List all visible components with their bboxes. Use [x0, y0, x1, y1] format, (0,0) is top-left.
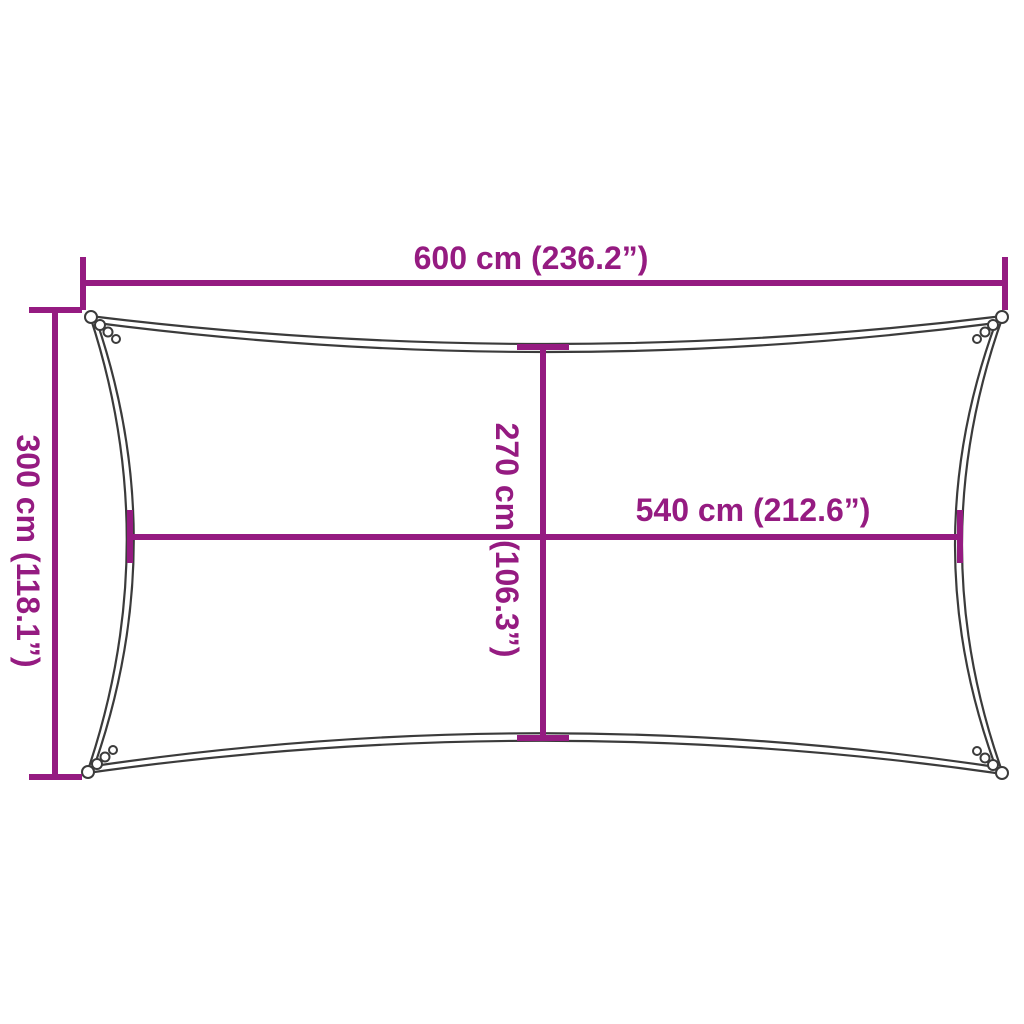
grommet-ring	[981, 328, 990, 337]
sail-edge-right-outer	[962, 316, 1003, 774]
grommet-ring	[112, 335, 120, 343]
dimension-label-top-width: 600 cm (236.2”)	[331, 240, 731, 276]
dimension-label-left-height: 300 cm (118.1”)	[10, 351, 46, 751]
grommet-ring	[82, 766, 94, 778]
grommet-ring	[92, 759, 102, 769]
grommet-ring	[988, 760, 998, 770]
grommet-ring	[95, 320, 105, 330]
sail-edge-bottom-outer	[87, 741, 1003, 774]
sail-edge-top-outer	[90, 316, 1003, 344]
dimension-label-inner-width: 540 cm (212.6”)	[553, 492, 953, 528]
product-dimension-diagram: 600 cm (236.2”) 300 cm (118.1”) 270 cm (…	[0, 0, 1024, 1024]
grommet-ring	[101, 753, 110, 762]
grommet-ring	[85, 311, 97, 323]
grommet-ring	[996, 311, 1008, 323]
grommet-ring	[996, 767, 1008, 779]
grommet-ring	[981, 754, 990, 763]
grommet-ring	[973, 335, 981, 343]
dimension-label-inner-height: 270 cm (106.3”)	[489, 340, 525, 740]
grommet-ring	[104, 328, 113, 337]
grommet-ring	[973, 747, 981, 755]
grommet-ring	[988, 320, 998, 330]
grommet-ring	[109, 746, 117, 754]
sail-edge-left-outer	[87, 316, 127, 773]
